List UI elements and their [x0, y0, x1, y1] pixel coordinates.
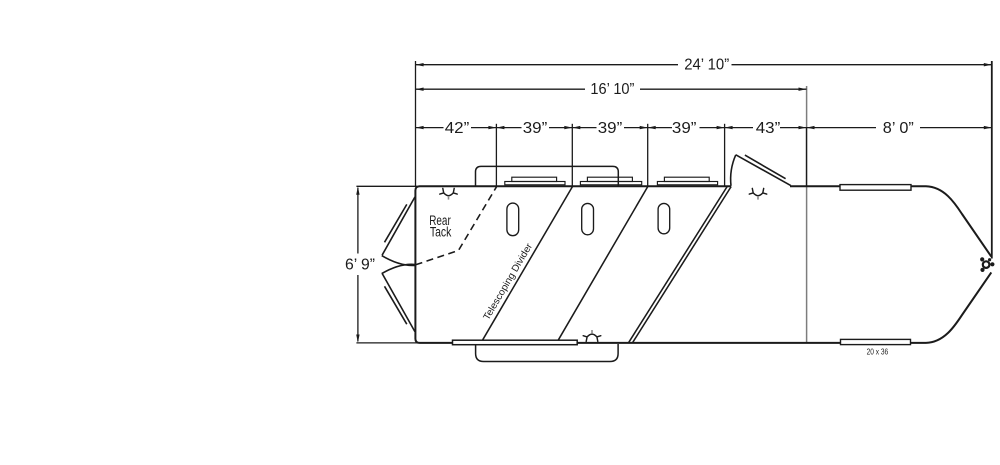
svg-text:6’ 9”: 6’ 9”: [345, 257, 375, 274]
svg-text:8’ 0”: 8’ 0”: [883, 120, 914, 137]
svg-text:42”: 42”: [445, 120, 470, 137]
svg-text:16’ 10”: 16’ 10”: [590, 81, 634, 98]
svg-text:39”: 39”: [672, 120, 697, 137]
svg-text:20 x 36: 20 x 36: [867, 348, 889, 357]
svg-text:39”: 39”: [523, 120, 548, 137]
svg-text:Tack: Tack: [430, 225, 452, 240]
svg-text:24’ 10”: 24’ 10”: [684, 57, 729, 74]
svg-text:43”: 43”: [756, 120, 781, 137]
svg-text:39”: 39”: [598, 120, 623, 137]
